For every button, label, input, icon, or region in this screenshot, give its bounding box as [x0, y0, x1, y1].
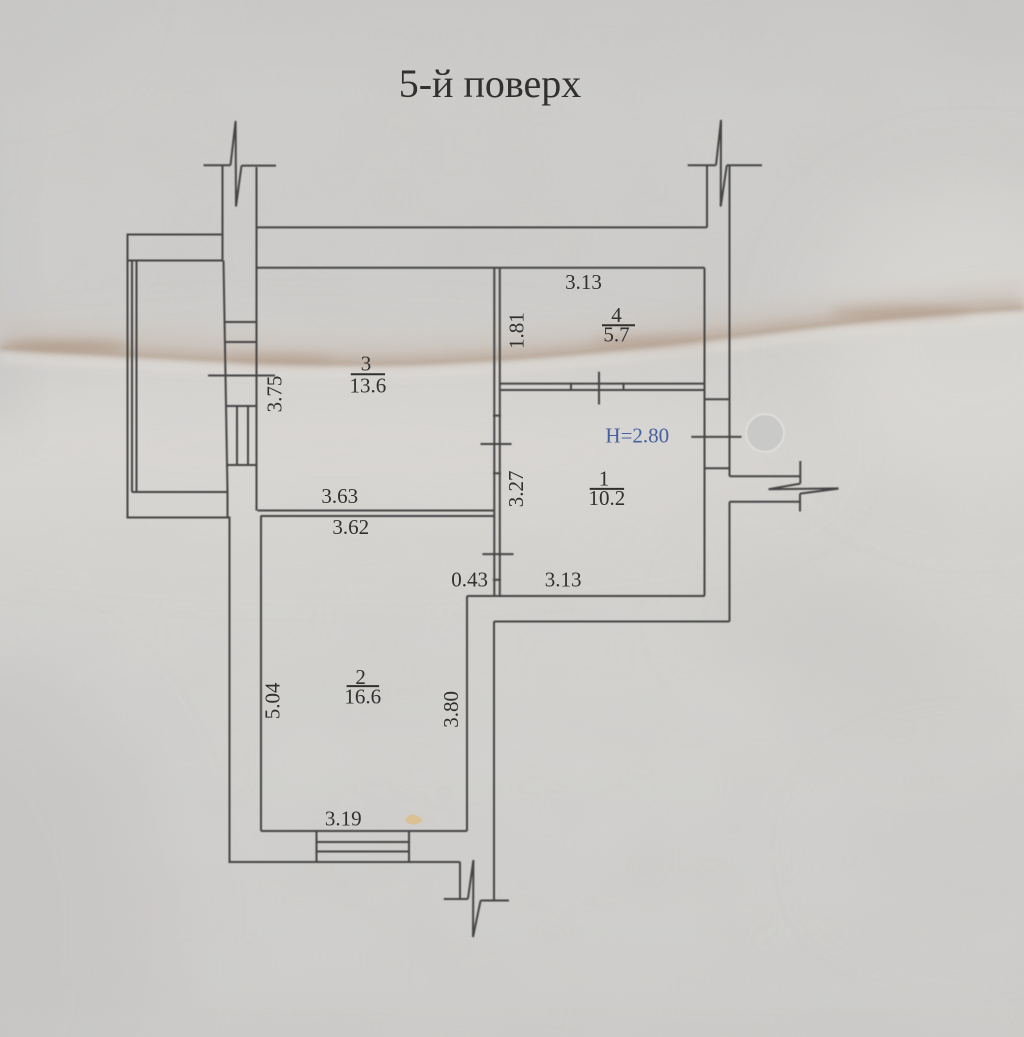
svg-text:0.43: 0.43 [451, 568, 488, 592]
svg-text:3.62: 3.62 [332, 515, 369, 539]
svg-text:16.6: 16.6 [344, 685, 381, 709]
svg-text:3: 3 [361, 351, 372, 375]
svg-text:3.13: 3.13 [565, 270, 602, 294]
svg-text:5.7: 5.7 [603, 323, 629, 347]
svg-text:3.13: 3.13 [545, 568, 582, 592]
svg-text:3.75: 3.75 [263, 376, 287, 413]
svg-text:3.19: 3.19 [325, 807, 362, 831]
svg-text:13.6: 13.6 [350, 374, 387, 398]
svg-text:H=2.80: H=2.80 [605, 424, 669, 448]
svg-text:5-й поверх: 5-й поверх [399, 61, 582, 106]
svg-text:3.63: 3.63 [321, 484, 358, 508]
svg-text:3.80: 3.80 [439, 691, 463, 728]
svg-text:5.04: 5.04 [260, 682, 284, 719]
svg-text:1.81: 1.81 [505, 312, 529, 349]
svg-text:10.2: 10.2 [589, 486, 626, 510]
svg-text:3.27: 3.27 [504, 471, 528, 508]
